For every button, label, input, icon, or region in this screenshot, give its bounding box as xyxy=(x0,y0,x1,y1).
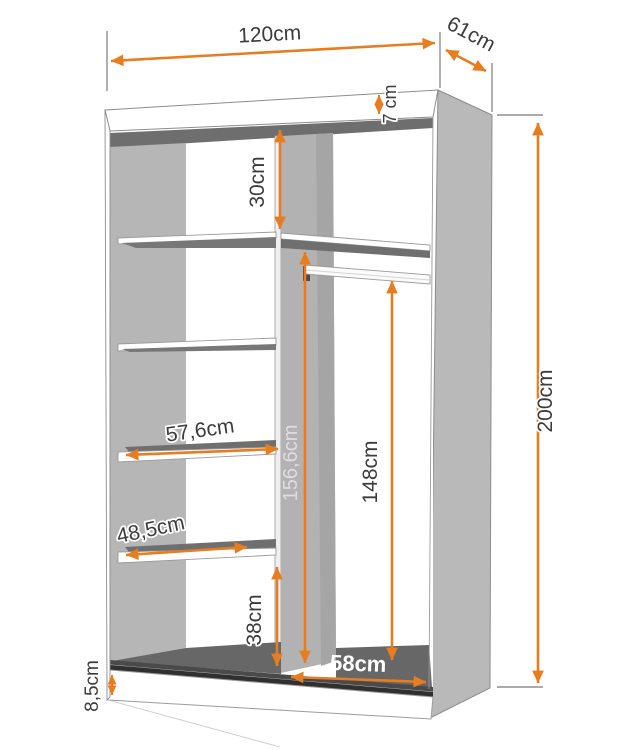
dim-width-label: 120cm xyxy=(238,21,302,47)
dim-depth-label: 61cm xyxy=(443,12,499,56)
dim-inner-width-label: 58cm xyxy=(330,650,387,677)
diagram-canvas: 120cm 61cm 200cm 7 cm 30cm 156,6cm 148cm… xyxy=(0,0,626,750)
dim-plinth-label: 8,5cm xyxy=(82,660,103,712)
dim-inner-height-label: 156,6cm xyxy=(280,425,302,502)
wardrobe-body xyxy=(105,90,492,747)
dim-upper-gap-label: 30cm xyxy=(246,156,269,207)
left-front-stile xyxy=(105,110,110,700)
dim-hang-height-label: 148cm xyxy=(359,440,382,503)
right-side-panel xyxy=(430,90,492,718)
dim-lower-gap-label: 38cm xyxy=(243,594,266,645)
dim-depth-arrow xyxy=(446,50,486,71)
dim-height-label: 200cm xyxy=(534,369,557,432)
wardrobe-dimension-diagram: 120cm 61cm 200cm 7 cm 30cm 156,6cm 148cm… xyxy=(0,0,626,750)
dim-top-panel-label: 7 cm xyxy=(380,84,400,123)
left-wall-inner-face xyxy=(110,143,186,662)
